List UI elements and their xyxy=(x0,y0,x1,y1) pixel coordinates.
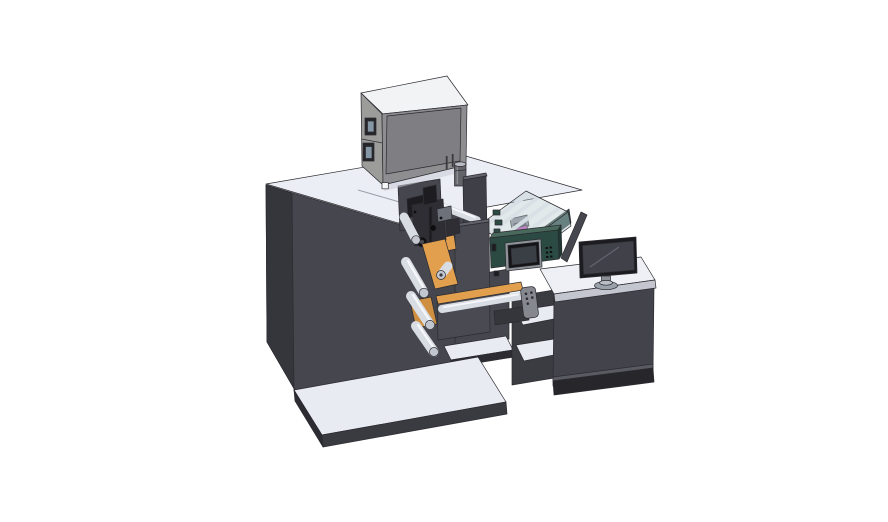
hmi-button-6 xyxy=(550,256,552,258)
cabinet-left-face xyxy=(266,185,296,392)
monitor-screen xyxy=(583,241,635,275)
roller-1-cap xyxy=(419,288,429,298)
hmi-foot xyxy=(494,271,499,276)
roller-0-cap xyxy=(412,236,421,245)
hmi-button-1 xyxy=(546,247,548,249)
vent-slot-1 xyxy=(446,156,448,169)
machine-scene xyxy=(266,76,656,447)
machine-cad-render xyxy=(0,0,888,522)
roller-3-cap xyxy=(430,348,439,357)
monitor-stand-base-top xyxy=(600,280,613,285)
hmi-port xyxy=(492,244,496,251)
roller-2-cap xyxy=(425,320,434,329)
hmi-button-3 xyxy=(546,252,548,254)
bolt-2 xyxy=(440,217,443,220)
hmi-button-5 xyxy=(546,256,548,258)
hmi-button-2 xyxy=(550,247,552,249)
vent-slot-2 xyxy=(452,154,454,167)
hinge-upper-window xyxy=(368,121,375,132)
cad-viewport xyxy=(0,0,888,522)
bolt-1 xyxy=(414,211,417,214)
filter-cylinder-cap xyxy=(454,162,466,167)
head-motor xyxy=(437,206,452,222)
pcb-detail-2 xyxy=(495,220,502,225)
hmi-button-4 xyxy=(550,251,552,253)
console-desk xyxy=(540,257,656,395)
adjust-knob-small xyxy=(430,225,436,231)
head-top-block xyxy=(423,185,437,205)
roller-stub-hub xyxy=(439,273,442,276)
pcb-detail-1 xyxy=(493,210,500,215)
hmi-screen-face xyxy=(511,246,537,266)
door-latch xyxy=(382,183,388,189)
hinge-lower-window xyxy=(366,147,373,159)
head-bracket xyxy=(446,218,460,236)
printer-unit xyxy=(361,76,468,191)
